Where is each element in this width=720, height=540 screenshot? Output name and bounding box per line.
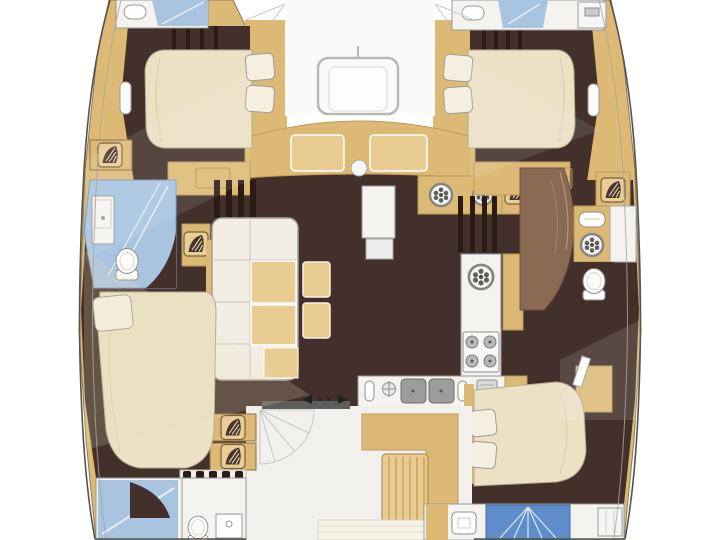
- port-aft-bathroom: [96, 478, 246, 540]
- galley-island-low: [366, 239, 393, 259]
- sofa-cushion: [251, 305, 296, 345]
- bench-cushion: [291, 135, 344, 171]
- toilet-icon: [188, 516, 208, 540]
- deck-hatch-icon: [601, 178, 625, 202]
- bed-pillow: [469, 409, 498, 438]
- floorplan-stage: [0, 0, 720, 540]
- aft-platform: [318, 520, 424, 540]
- sofa-cushion: [251, 261, 296, 303]
- drink-table: [351, 160, 367, 176]
- deck-hatch-icon: [221, 416, 245, 440]
- catamaran-floorplan: [0, 0, 720, 540]
- round-dial-icon: [469, 265, 493, 289]
- stool: [303, 262, 330, 297]
- hull-window: [588, 84, 599, 116]
- hull-window: [120, 82, 131, 114]
- galley-island: [362, 186, 395, 238]
- sink-icon: [365, 381, 374, 401]
- shower-box: [486, 505, 570, 540]
- round-dial-icon: [430, 184, 452, 206]
- bed-pillow: [443, 86, 473, 114]
- starboard-forward-bathroom: [452, 0, 606, 30]
- foredeck-table-top: [329, 67, 387, 111]
- bench-cushion: [370, 135, 427, 171]
- port-forward-bathroom: [116, 0, 208, 28]
- deck-hatch-icon: [184, 232, 208, 256]
- deck-hatch-icon: [221, 445, 245, 469]
- locker-handle: [585, 8, 599, 16]
- cabinet: [598, 508, 622, 536]
- counter: [610, 206, 636, 262]
- bed-pillow: [469, 441, 497, 469]
- sink-icon: [216, 514, 242, 538]
- sink-icon: [452, 512, 476, 534]
- round-dial-icon: [581, 234, 603, 256]
- sink-icon: [124, 5, 146, 19]
- stove-icon: [463, 332, 499, 372]
- foredeck-bench: [245, 121, 475, 178]
- bed-pillow: [443, 54, 473, 82]
- toilet-icon: [583, 269, 605, 301]
- sink-icon: [462, 6, 484, 20]
- starboard-aft-bathroom: [424, 504, 624, 540]
- cabinet: [426, 504, 448, 540]
- stool: [303, 303, 330, 338]
